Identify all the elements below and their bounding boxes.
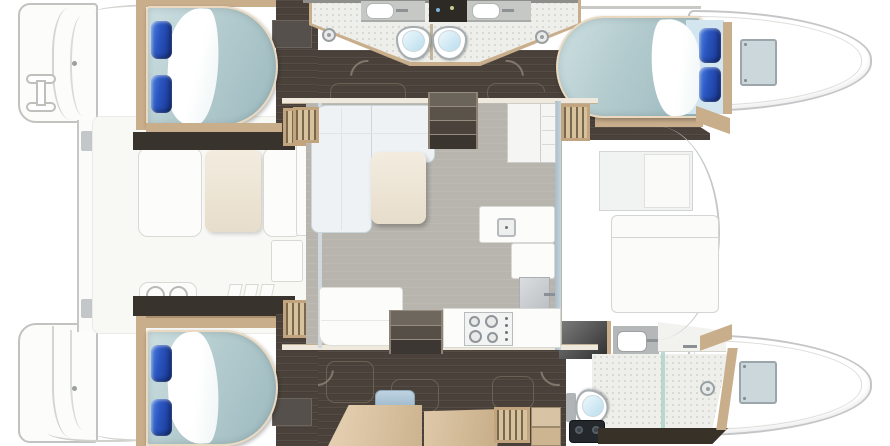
port-steps-tread-4 bbox=[428, 134, 478, 149]
stove-burner-2 bbox=[485, 315, 498, 328]
salon-coffee-table bbox=[371, 152, 426, 224]
owner-floor-hatch-3 bbox=[492, 376, 534, 409]
stove-knob-3 bbox=[505, 331, 508, 334]
starboard-transom-step-line-2 bbox=[70, 330, 96, 430]
stbd-steps-tread-2 bbox=[389, 325, 443, 339]
port-aft-cabin-bench bbox=[272, 20, 312, 48]
swim-ladder-rail bbox=[36, 80, 46, 106]
foredeck-sunpad-seam bbox=[611, 237, 719, 238]
stbd-aft-cabin-bench bbox=[272, 398, 312, 426]
port-fwd-pillow-2 bbox=[699, 67, 721, 102]
port-steps-tread-2 bbox=[428, 106, 478, 120]
cockpit-side-table bbox=[271, 240, 303, 282]
owner-toilet-bowl bbox=[582, 395, 604, 417]
stove-knob-1 bbox=[505, 317, 508, 320]
owner-head-fixture bbox=[683, 345, 697, 348]
stbd-aft-cabin-trim-left bbox=[136, 316, 146, 446]
port-aft-cabin-trim-left bbox=[136, 0, 146, 130]
owner-shower-drain bbox=[700, 381, 715, 396]
niche-item-1 bbox=[436, 8, 440, 12]
galley-counter-leg bbox=[511, 243, 555, 279]
sofa-seam-vertical bbox=[341, 108, 342, 230]
fridge-shelf-2 bbox=[542, 130, 555, 131]
foredeck-sunpad bbox=[611, 215, 719, 313]
sofa-seam-horizontal bbox=[314, 133, 432, 134]
stbd-aft-cabin-wall bbox=[133, 296, 295, 316]
owner-shower-glass bbox=[661, 352, 665, 432]
stbd-aft-pillow-2 bbox=[151, 399, 172, 436]
galley-sink-drain bbox=[505, 226, 508, 229]
port-fwd-berth-trim bbox=[723, 22, 732, 114]
port-bow-hatch-hinge-2 bbox=[744, 79, 747, 82]
shower-drain-port-left bbox=[322, 28, 336, 42]
fridge-shelf-1 bbox=[542, 116, 555, 117]
starboard-cleat bbox=[72, 386, 77, 391]
shower-drain-port-right bbox=[535, 30, 549, 44]
foredeck-window-panel bbox=[644, 154, 690, 208]
owner-toilet-tank bbox=[566, 393, 576, 422]
stbd-bow-hatch-hinge-2 bbox=[743, 397, 746, 400]
port-head-faucet-right bbox=[502, 9, 514, 12]
owner-head-mirror bbox=[559, 321, 611, 359]
port-steps-tread-1 bbox=[428, 92, 478, 106]
owner-head-aft-strip bbox=[598, 428, 728, 444]
owner-step-1 bbox=[531, 407, 561, 427]
salon-louver-port-aft bbox=[293, 107, 319, 143]
port-aft-cabin-wall bbox=[133, 132, 295, 150]
stbd-steps-tread-1 bbox=[389, 310, 443, 325]
stbd-aft-pillow-1 bbox=[151, 345, 172, 382]
port-aft-pillow-1 bbox=[151, 21, 172, 59]
stbd-bow-hatch-hinge-1 bbox=[743, 365, 746, 368]
galley-counter-main bbox=[479, 206, 555, 243]
cockpit-dining-table bbox=[205, 150, 261, 232]
salon-louver-port-fwd bbox=[561, 104, 590, 141]
stove-burner-3 bbox=[469, 330, 482, 343]
owner-slatted-grate bbox=[494, 407, 530, 443]
stove-burner-1 bbox=[469, 316, 480, 327]
port-cleat bbox=[72, 61, 77, 66]
port-bow-hatch-hinge-1 bbox=[744, 43, 747, 46]
stbd-steps-tread-3 bbox=[389, 339, 443, 354]
port-fwd-pillow-1 bbox=[699, 28, 721, 63]
floor-plan bbox=[0, 0, 890, 446]
fridge-shelf-3 bbox=[542, 144, 555, 145]
fridge-divider bbox=[540, 104, 541, 162]
owner-desk-right bbox=[424, 409, 502, 446]
stove-burner-4 bbox=[487, 332, 498, 343]
cockpit-bench-left bbox=[138, 147, 202, 237]
stbd-aft-cabin-cabinet-band bbox=[146, 316, 282, 328]
appliance-dial-1 bbox=[575, 426, 583, 434]
stove-knob-2 bbox=[505, 324, 508, 327]
port-transom-step-line-2 bbox=[70, 16, 96, 116]
locker-door-handle bbox=[544, 293, 555, 296]
owner-step-2 bbox=[531, 427, 561, 446]
toilet-bowl-port-left bbox=[402, 30, 425, 52]
port-head-sink-left bbox=[366, 3, 394, 19]
salon-fridge-cabinet bbox=[507, 103, 556, 163]
port-head-sink-right bbox=[472, 3, 500, 19]
port-aft-pillow-2 bbox=[151, 75, 172, 113]
port-head-faucet-left bbox=[396, 9, 408, 12]
heads-shared-niche bbox=[429, 0, 467, 22]
port-steps-tread-3 bbox=[428, 120, 478, 134]
stove-knob-4 bbox=[505, 338, 508, 341]
toilet-bowl-port-right bbox=[438, 30, 461, 52]
niche-item-2 bbox=[450, 6, 454, 10]
